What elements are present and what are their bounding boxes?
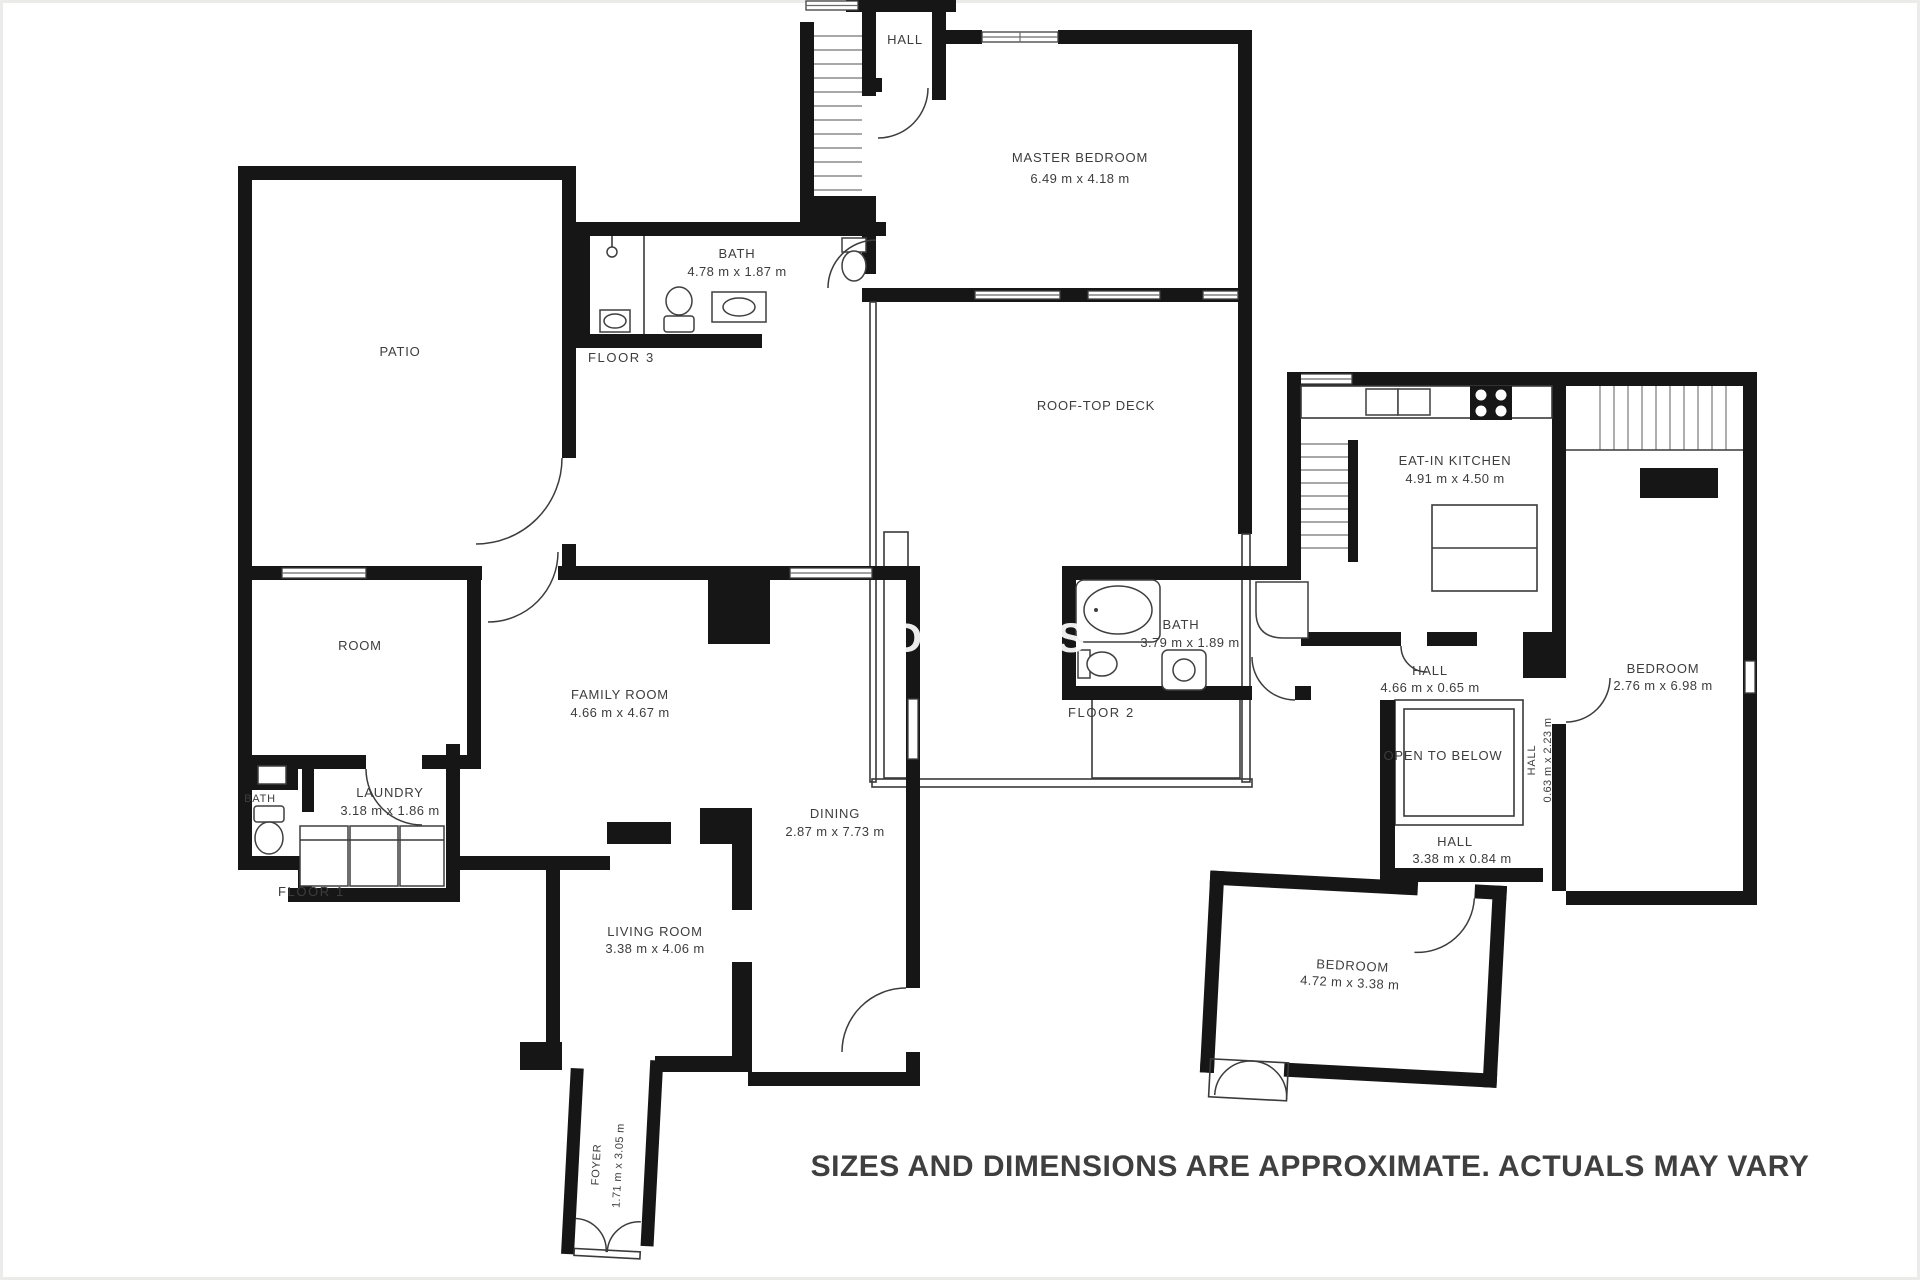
bath2-dims: 3.79 m x 1.89 m <box>1140 635 1239 650</box>
patio-label: PATIO <box>379 344 420 359</box>
bedroom-right-dims: 2.76 m x 6.98 m <box>1613 678 1712 693</box>
stove-icon <box>1470 386 1512 420</box>
dining-label: DINING <box>810 806 860 821</box>
foyer-label: FOYER <box>590 1143 604 1185</box>
floor1-tag: FLOOR 1 <box>278 884 345 899</box>
family-room-label: FAMILY ROOM <box>571 687 669 702</box>
stairs-floor3 <box>814 36 862 190</box>
shower-head-icon <box>607 247 617 257</box>
deck-rail <box>872 779 1252 787</box>
laundry-label: LAUNDRY <box>356 785 424 800</box>
laundry-dims: 3.18 m x 1.86 m <box>340 803 439 818</box>
toilet-icon <box>254 806 284 822</box>
living-room-label: LIVING ROOM <box>607 924 702 939</box>
master-bedroom-dims: 6.49 m x 4.18 m <box>1030 171 1129 186</box>
stair-rail <box>1348 440 1358 562</box>
door-arc <box>878 88 928 138</box>
watermark-letter: D <box>892 614 924 661</box>
hall-label: HALL <box>887 32 923 47</box>
toilet-icon <box>664 316 694 332</box>
disclaimer-text: SIZES AND DIMENSIONS ARE APPROXIMATE. AC… <box>811 1150 1810 1183</box>
floorplan-drawing: HALL MASTER BEDROOM 6.49 m x 4.18 m BATH… <box>0 0 1920 1280</box>
foyer-dims: 1.71 m x 3.05 m <box>611 1123 627 1208</box>
floorplan-page: HALL MASTER BEDROOM 6.49 m x 4.18 m BATH… <box>0 0 1920 1280</box>
dining-dims: 2.87 m x 7.73 m <box>785 824 884 839</box>
deck-bench <box>1092 690 1240 778</box>
bedroom-bottom-dims: 4.72 m x 3.38 m <box>1300 972 1400 992</box>
washer-icon <box>300 826 348 886</box>
roof-deck-label: ROOF-TOP DECK <box>1037 398 1155 413</box>
closet-block <box>1640 468 1718 498</box>
stairs-upper <box>1600 386 1726 450</box>
floor3-tag: FLOOR 3 <box>588 350 655 365</box>
stairs-kitchen <box>1301 444 1348 548</box>
door-arc <box>607 1220 641 1254</box>
floor2-tag: FLOOR 2 <box>1068 705 1135 720</box>
living-room-dims: 3.38 m x 4.06 m <box>605 941 704 956</box>
door-arc <box>1566 678 1610 722</box>
kitchen-sink-icon <box>1366 389 1398 415</box>
floor2-plan: BEDROOM 4.72 m x 3.38 m EAT-IN KITCHEN 4… <box>1062 372 1757 1112</box>
room-label: ROOM <box>338 638 382 653</box>
sink-icon <box>258 766 286 784</box>
bedroom-bottom-label: BEDROOM <box>1316 956 1389 975</box>
hall-lower-label: HALL <box>1437 834 1473 849</box>
master-bedroom-label: MASTER BEDROOM <box>1012 150 1148 165</box>
door-arc <box>1252 657 1295 700</box>
kitchen-label: EAT-IN KITCHEN <box>1399 453 1512 468</box>
hall-vertical-label: HALL <box>1526 745 1538 776</box>
kitchen-dims: 4.91 m x 4.50 m <box>1405 471 1504 486</box>
open-to-below-label: OPEN TO BELOW <box>1383 748 1502 763</box>
foyer: FOYER 1.71 m x 3.05 m <box>561 1056 663 1260</box>
door-arc <box>574 1218 608 1252</box>
laundry-counter <box>400 826 444 886</box>
door-arc <box>476 458 562 544</box>
bedroom-right-label: BEDROOM <box>1627 661 1700 676</box>
window <box>908 699 918 759</box>
hall-lower-dims: 3.38 m x 0.84 m <box>1412 851 1511 866</box>
shower-icon <box>1256 582 1308 638</box>
door-arc <box>1414 895 1474 955</box>
bath3-dims: 4.78 m x 1.87 m <box>687 264 786 279</box>
hall-upper-dims: 4.66 m x 0.65 m <box>1380 680 1479 695</box>
hall-upper-label: HALL <box>1412 663 1448 678</box>
deck-rail <box>870 302 876 782</box>
door-arc <box>842 988 906 1052</box>
watermark-letter: S <box>1057 614 1087 661</box>
watermark: D S <box>892 614 1087 661</box>
door-arc <box>488 552 558 622</box>
bath2-label: BATH <box>1163 617 1200 632</box>
bath1-label: BATH <box>244 793 276 805</box>
bath3-label: BATH <box>719 246 756 261</box>
bedroom-bottom: BEDROOM 4.72 m x 3.38 m <box>1199 871 1507 1112</box>
family-room-dims: 4.66 m x 4.67 m <box>570 705 669 720</box>
hall-vertical-dims: 0.63 m x 2.23 m <box>1542 718 1554 803</box>
bay-window <box>1209 1059 1289 1101</box>
window <box>1745 661 1755 693</box>
dryer-icon <box>350 826 398 886</box>
